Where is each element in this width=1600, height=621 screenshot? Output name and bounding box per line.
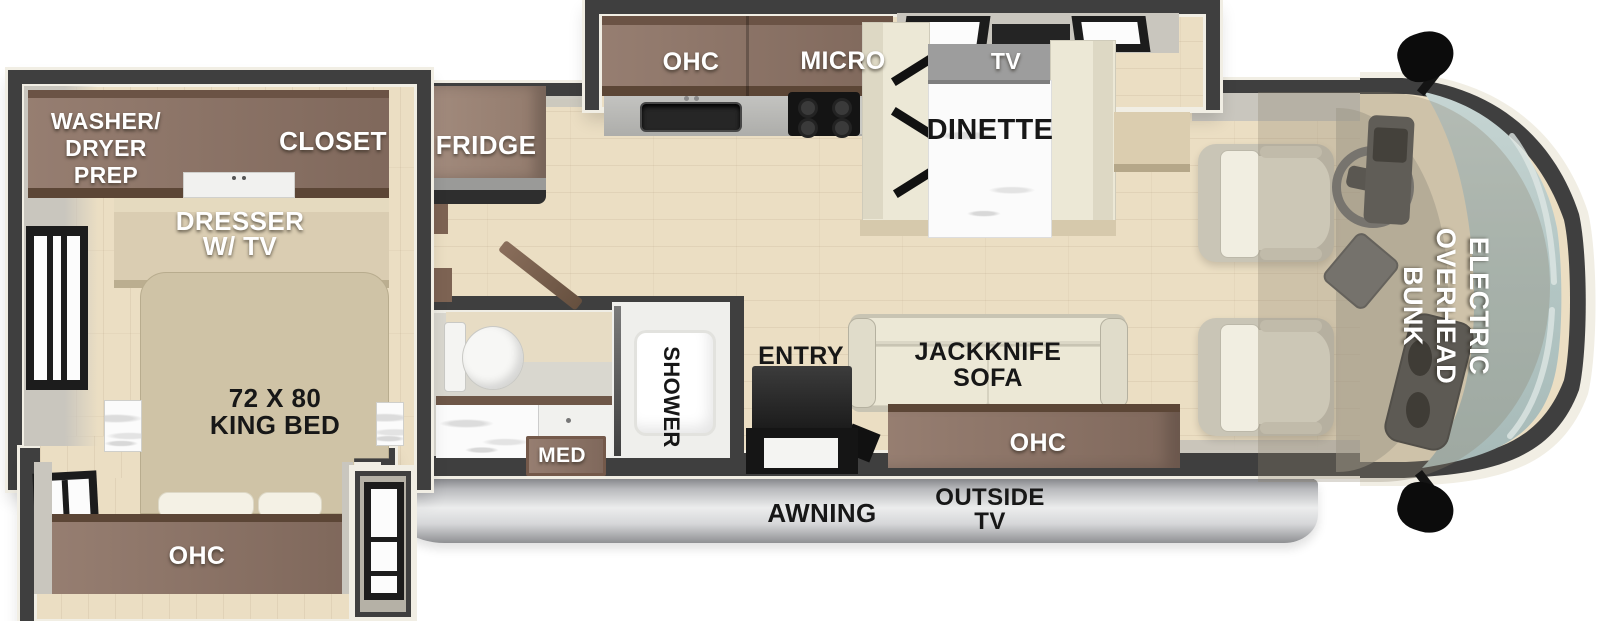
label-outside-tv: OUTSIDE TV: [920, 486, 1060, 534]
entry-steps: [746, 428, 858, 474]
entry-door: [752, 366, 852, 436]
sofa-armrest-right: [1100, 318, 1128, 408]
bedroom-window: [26, 226, 88, 390]
label-sofa-ohc: OHC: [978, 430, 1098, 457]
prep-counter: [183, 172, 295, 198]
stove-burner: [832, 118, 852, 138]
window-mullion: [371, 537, 397, 542]
label-med: MED: [517, 445, 607, 467]
ohc-slide-shading: [34, 462, 52, 594]
label-washer-dryer-prep: WASHER/ DRYER PREP: [31, 108, 181, 189]
fridge-base-shadow: [424, 190, 546, 204]
rv-floorplan: WASHER/ DRYER PREP CLOSET DRESSER W/ TV …: [0, 0, 1600, 621]
label-shower: SHOWER: [659, 345, 683, 449]
prep-faucet: [242, 176, 246, 180]
window-mullion: [47, 236, 53, 380]
rear-window-box: [352, 468, 414, 620]
label-kitchen-ohc: OHC: [631, 49, 751, 76]
faucet: [684, 96, 689, 101]
stove-burner: [832, 98, 852, 118]
seat-backrest: [1220, 324, 1260, 432]
label-closet: CLOSET: [263, 128, 403, 156]
label-king-bed: 72 X 80 KING BED: [185, 385, 365, 439]
entry-step-tread: [764, 438, 838, 468]
label-entry: ENTRY: [741, 343, 861, 370]
nightstand-right: [376, 402, 404, 446]
label-micro: MICRO: [783, 48, 903, 75]
shower-door: [614, 306, 621, 456]
label-dresser-tv: DRESSER W/ TV: [155, 209, 325, 259]
label-tv: TV: [966, 49, 1046, 73]
cabinet-top-edge: [52, 514, 342, 522]
stove-burner: [798, 98, 818, 118]
bathroom-right-wall: [730, 296, 744, 474]
rear-window: [364, 482, 404, 600]
window-mullion: [61, 236, 67, 380]
fridge-base-trim: [424, 178, 546, 190]
cabinet-top-edge: [28, 90, 389, 98]
label-jackknife-sofa: JACKKNIFE SOFA: [888, 339, 1088, 391]
window-pane: [34, 236, 80, 380]
bench-backrest: [1093, 41, 1113, 221]
vanity-knob: [566, 418, 571, 423]
prep-faucet: [232, 176, 236, 180]
stove-burner: [798, 118, 818, 138]
label-fridge: FRIDGE: [421, 132, 551, 160]
vanity-counter-edge: [436, 396, 622, 405]
label-bedroom-ohc: OHC: [137, 543, 257, 570]
toilet-bowl: [462, 326, 524, 390]
label-awning: AWNING: [742, 500, 902, 528]
cabinet-top-edge: [888, 404, 1180, 412]
label-dinette: DINETTE: [890, 115, 1090, 146]
nightstand-left: [104, 400, 142, 452]
dinette-table: [928, 80, 1052, 238]
window-mullion: [371, 571, 397, 576]
kitchen-sink: [640, 102, 742, 132]
label-electric-overhead-bunk: ELECTRIC OVERHEAD BUNK: [1375, 156, 1495, 456]
seat-backrest: [1220, 150, 1260, 258]
faucet: [694, 96, 699, 101]
dinette-side-counter: [1114, 112, 1190, 172]
